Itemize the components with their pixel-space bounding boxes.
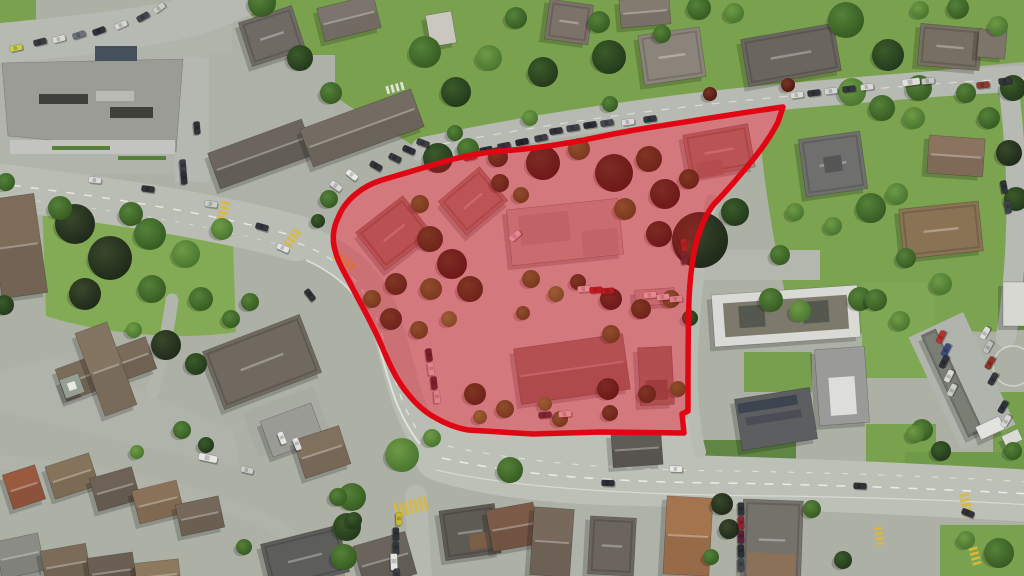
building-house [921,135,985,181]
aerial-orthophoto-scene [0,0,1024,576]
car [998,77,1013,86]
car [736,544,744,558]
car [179,171,188,186]
building-hall-flat-roof [2,46,183,160]
building-house [524,506,574,576]
building-modern-block-a [706,285,861,351]
car [391,527,399,541]
aerial-map [0,0,1024,576]
car [192,121,201,136]
car [976,81,991,90]
car [853,483,868,491]
building-building-edge [998,282,1024,330]
building-villa-mansion [793,131,868,202]
car [736,502,744,516]
car [736,558,744,572]
building-house [582,516,636,576]
building-apartment [735,499,803,576]
car [736,530,744,544]
car [394,512,402,526]
building-house [912,23,983,75]
building-house [539,0,594,49]
car [601,480,615,488]
car [669,466,683,474]
car [736,516,744,530]
building-modern-tower [809,346,869,430]
building-house [606,430,664,472]
